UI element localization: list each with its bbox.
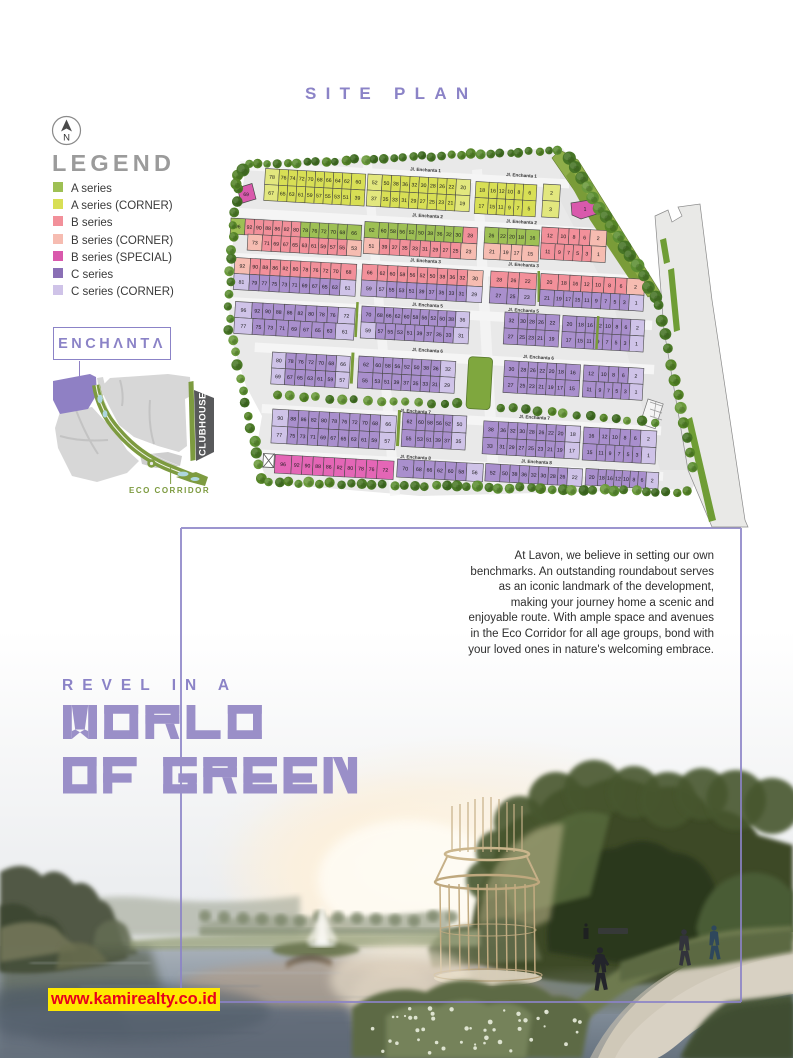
svg-text:29: 29 xyxy=(410,198,416,204)
svg-text:73: 73 xyxy=(267,325,273,331)
svg-text:27: 27 xyxy=(442,248,448,254)
svg-text:51: 51 xyxy=(384,379,390,385)
svg-text:25: 25 xyxy=(510,294,516,300)
svg-text:2: 2 xyxy=(634,285,637,291)
svg-text:61: 61 xyxy=(342,329,348,335)
svg-text:19: 19 xyxy=(548,336,554,342)
svg-text:8: 8 xyxy=(623,435,626,441)
svg-text:55: 55 xyxy=(387,329,393,335)
svg-text:55: 55 xyxy=(339,245,345,251)
svg-text:37: 37 xyxy=(403,380,409,386)
svg-text:21: 21 xyxy=(537,336,543,342)
svg-text:10: 10 xyxy=(507,189,513,195)
svg-text:36: 36 xyxy=(437,231,443,237)
svg-text:76: 76 xyxy=(298,359,304,365)
svg-text:23: 23 xyxy=(438,200,444,206)
svg-text:75: 75 xyxy=(271,281,277,287)
svg-text:19: 19 xyxy=(557,448,563,454)
svg-text:22: 22 xyxy=(548,431,554,437)
svg-text:72: 72 xyxy=(382,468,388,474)
svg-text:86: 86 xyxy=(286,310,292,316)
svg-text:5: 5 xyxy=(613,299,616,305)
svg-text:28: 28 xyxy=(430,183,436,189)
svg-text:17: 17 xyxy=(569,448,575,454)
svg-text:69: 69 xyxy=(275,374,281,380)
svg-text:26: 26 xyxy=(559,474,565,480)
svg-text:3: 3 xyxy=(585,251,588,257)
svg-text:67: 67 xyxy=(283,242,289,248)
svg-text:15: 15 xyxy=(574,297,580,303)
svg-text:57: 57 xyxy=(316,193,322,199)
svg-text:17: 17 xyxy=(566,338,572,344)
svg-text:8: 8 xyxy=(572,235,575,241)
svg-text:53: 53 xyxy=(417,437,423,443)
svg-text:36: 36 xyxy=(402,182,408,188)
svg-text:69: 69 xyxy=(291,327,297,333)
svg-text:53: 53 xyxy=(334,194,340,200)
svg-text:3: 3 xyxy=(624,389,627,395)
svg-text:17: 17 xyxy=(565,297,571,303)
svg-text:12: 12 xyxy=(547,233,553,239)
svg-text:68: 68 xyxy=(372,421,378,427)
svg-text:35: 35 xyxy=(413,381,419,387)
svg-text:12: 12 xyxy=(615,476,621,482)
svg-text:60: 60 xyxy=(418,420,424,426)
svg-text:67: 67 xyxy=(303,327,309,333)
svg-text:35: 35 xyxy=(402,246,408,252)
svg-text:38: 38 xyxy=(393,181,399,187)
svg-text:16: 16 xyxy=(588,433,594,439)
svg-text:12: 12 xyxy=(584,282,590,288)
svg-text:56: 56 xyxy=(394,364,400,370)
svg-text:8: 8 xyxy=(517,190,520,196)
svg-text:20: 20 xyxy=(589,475,595,481)
svg-text:70: 70 xyxy=(362,420,368,426)
svg-text:72: 72 xyxy=(321,229,327,235)
svg-text:62: 62 xyxy=(363,362,369,368)
svg-text:36: 36 xyxy=(500,428,506,434)
svg-text:22: 22 xyxy=(525,279,531,285)
svg-text:70: 70 xyxy=(402,466,408,472)
svg-text:31: 31 xyxy=(499,444,505,450)
svg-text:70: 70 xyxy=(365,312,371,318)
svg-text:53: 53 xyxy=(397,330,403,336)
svg-text:37: 37 xyxy=(428,290,434,296)
svg-text:72: 72 xyxy=(343,313,349,319)
svg-text:10: 10 xyxy=(605,324,611,330)
svg-text:22: 22 xyxy=(448,184,454,190)
svg-text:19: 19 xyxy=(556,296,562,302)
svg-text:15: 15 xyxy=(527,251,533,257)
svg-text:21: 21 xyxy=(547,447,553,453)
svg-text:2: 2 xyxy=(550,191,553,197)
svg-text:32: 32 xyxy=(510,428,516,434)
svg-text:76: 76 xyxy=(330,313,336,319)
svg-text:35: 35 xyxy=(436,332,442,338)
svg-text:10: 10 xyxy=(560,234,566,240)
svg-text:23: 23 xyxy=(529,384,535,390)
svg-text:20: 20 xyxy=(558,431,564,437)
svg-text:80: 80 xyxy=(321,418,327,424)
svg-text:28: 28 xyxy=(520,367,526,373)
svg-text:82: 82 xyxy=(311,418,317,424)
svg-text:96: 96 xyxy=(280,462,286,468)
svg-text:62: 62 xyxy=(394,314,400,320)
svg-text:82: 82 xyxy=(282,266,288,272)
svg-text:26: 26 xyxy=(510,278,516,284)
svg-text:11: 11 xyxy=(586,339,592,345)
svg-text:6: 6 xyxy=(583,235,586,241)
svg-text:88: 88 xyxy=(315,464,321,470)
svg-text:76: 76 xyxy=(313,268,319,274)
svg-text:20: 20 xyxy=(548,369,554,375)
svg-text:71: 71 xyxy=(264,241,270,247)
svg-text:62: 62 xyxy=(406,419,412,425)
svg-text:17: 17 xyxy=(557,385,563,391)
svg-text:78: 78 xyxy=(269,175,275,181)
svg-text:72: 72 xyxy=(299,176,305,182)
svg-text:20: 20 xyxy=(460,185,466,191)
svg-text:68: 68 xyxy=(377,313,383,319)
svg-text:60: 60 xyxy=(355,179,361,185)
svg-text:27: 27 xyxy=(518,445,524,451)
svg-text:62: 62 xyxy=(437,468,443,474)
svg-text:77: 77 xyxy=(261,281,267,287)
svg-text:60: 60 xyxy=(403,314,409,320)
svg-text:82: 82 xyxy=(336,465,342,471)
svg-text:90: 90 xyxy=(304,463,310,469)
svg-text:32: 32 xyxy=(508,318,514,324)
svg-text:55: 55 xyxy=(389,287,395,293)
svg-text:9: 9 xyxy=(608,451,611,457)
svg-text:69: 69 xyxy=(302,283,308,289)
svg-text:92: 92 xyxy=(294,463,300,469)
svg-text:33: 33 xyxy=(392,197,398,203)
svg-text:60: 60 xyxy=(448,469,454,475)
svg-text:68: 68 xyxy=(416,467,422,473)
svg-text:6: 6 xyxy=(640,478,643,484)
svg-text:6: 6 xyxy=(634,436,637,442)
svg-text:5: 5 xyxy=(527,206,530,212)
svg-text:71: 71 xyxy=(291,283,297,289)
svg-text:73: 73 xyxy=(300,434,306,440)
svg-text:31: 31 xyxy=(432,382,438,388)
svg-text:69: 69 xyxy=(243,192,249,198)
svg-text:80: 80 xyxy=(308,311,314,317)
svg-text:5: 5 xyxy=(626,452,629,458)
svg-text:65: 65 xyxy=(292,242,298,248)
svg-text:15: 15 xyxy=(577,338,583,344)
svg-text:19: 19 xyxy=(459,201,465,207)
svg-text:27: 27 xyxy=(495,293,501,299)
svg-text:7: 7 xyxy=(607,388,610,394)
svg-text:32: 32 xyxy=(411,182,417,188)
svg-text:76: 76 xyxy=(311,228,317,234)
svg-text:88: 88 xyxy=(265,226,271,232)
svg-text:86: 86 xyxy=(274,226,280,232)
svg-text:38: 38 xyxy=(511,472,517,478)
svg-text:10: 10 xyxy=(601,372,607,378)
svg-text:36: 36 xyxy=(459,317,465,323)
svg-text:74: 74 xyxy=(290,176,296,182)
svg-text:26: 26 xyxy=(538,320,544,326)
svg-text:11: 11 xyxy=(545,249,551,255)
svg-text:33: 33 xyxy=(446,333,452,339)
svg-text:58: 58 xyxy=(399,272,405,278)
svg-text:92: 92 xyxy=(239,264,245,270)
svg-text:30: 30 xyxy=(420,183,426,189)
svg-text:68: 68 xyxy=(339,230,345,236)
svg-text:77: 77 xyxy=(240,324,246,330)
svg-text:68: 68 xyxy=(317,177,323,183)
svg-text:37: 37 xyxy=(426,332,432,338)
svg-text:39: 39 xyxy=(435,438,441,444)
svg-text:27: 27 xyxy=(508,334,514,340)
svg-text:63: 63 xyxy=(327,329,333,335)
svg-text:CLUBHOUSE: CLUBHOUSE xyxy=(198,392,209,456)
svg-text:18: 18 xyxy=(558,369,564,375)
svg-text:81: 81 xyxy=(238,280,244,286)
svg-text:28: 28 xyxy=(467,233,473,239)
svg-text:88: 88 xyxy=(290,416,296,422)
svg-text:50: 50 xyxy=(413,365,419,371)
svg-text:56: 56 xyxy=(399,229,405,235)
svg-text:30: 30 xyxy=(472,276,478,282)
svg-text:N: N xyxy=(63,133,70,144)
svg-text:50: 50 xyxy=(429,274,435,280)
svg-text:15: 15 xyxy=(569,386,575,392)
svg-text:1: 1 xyxy=(634,390,637,396)
svg-text:22: 22 xyxy=(539,368,545,374)
svg-text:11: 11 xyxy=(598,450,604,456)
svg-text:3: 3 xyxy=(623,341,626,347)
svg-text:35: 35 xyxy=(383,197,389,203)
svg-text:52: 52 xyxy=(430,316,436,322)
svg-text:38: 38 xyxy=(423,366,429,372)
svg-text:39: 39 xyxy=(354,195,360,201)
svg-text:25: 25 xyxy=(519,383,525,389)
svg-text:66: 66 xyxy=(351,231,357,237)
svg-text:51: 51 xyxy=(343,195,349,201)
svg-text:60: 60 xyxy=(389,271,395,277)
svg-text:59: 59 xyxy=(365,328,371,334)
svg-text:8: 8 xyxy=(612,372,615,378)
svg-text:52: 52 xyxy=(445,421,451,427)
svg-text:67: 67 xyxy=(330,436,336,442)
svg-text:9: 9 xyxy=(595,298,598,304)
svg-text:23: 23 xyxy=(528,335,534,341)
svg-text:5: 5 xyxy=(576,251,579,257)
svg-text:55: 55 xyxy=(325,194,331,200)
svg-text:76: 76 xyxy=(369,467,375,473)
svg-text:30: 30 xyxy=(519,429,525,435)
svg-text:30: 30 xyxy=(540,473,546,479)
svg-text:50: 50 xyxy=(456,422,462,428)
svg-text:20: 20 xyxy=(509,234,515,240)
svg-text:92: 92 xyxy=(246,225,252,231)
svg-text:63: 63 xyxy=(301,243,307,249)
svg-text:20: 20 xyxy=(546,280,552,286)
svg-text:50: 50 xyxy=(383,181,389,187)
svg-text:67: 67 xyxy=(312,284,318,290)
svg-text:18: 18 xyxy=(599,475,605,481)
svg-text:22: 22 xyxy=(500,234,506,240)
svg-text:33: 33 xyxy=(448,291,454,297)
svg-text:52: 52 xyxy=(404,364,410,370)
svg-text:78: 78 xyxy=(358,466,364,472)
svg-text:18: 18 xyxy=(479,188,485,194)
svg-text:70: 70 xyxy=(333,269,339,275)
svg-text:72: 72 xyxy=(308,360,314,366)
svg-text:38: 38 xyxy=(448,317,454,323)
svg-text:78: 78 xyxy=(319,312,325,318)
svg-text:33: 33 xyxy=(412,246,418,252)
svg-text:15: 15 xyxy=(587,450,593,456)
svg-text:78: 78 xyxy=(331,419,337,425)
svg-text:18: 18 xyxy=(561,281,567,287)
svg-text:59: 59 xyxy=(320,244,326,250)
svg-text:8: 8 xyxy=(632,477,635,483)
svg-text:9: 9 xyxy=(508,205,511,211)
svg-text:2: 2 xyxy=(597,236,600,242)
svg-text:37: 37 xyxy=(392,245,398,251)
svg-text:37: 37 xyxy=(444,438,450,444)
svg-text:68: 68 xyxy=(345,270,351,276)
svg-text:66: 66 xyxy=(367,270,373,276)
svg-text:10: 10 xyxy=(595,282,601,288)
svg-text:27: 27 xyxy=(420,199,426,205)
svg-text:1: 1 xyxy=(635,341,638,347)
svg-text:30: 30 xyxy=(455,232,461,238)
svg-text:30: 30 xyxy=(508,367,514,373)
svg-text:86: 86 xyxy=(326,464,332,470)
svg-text:29: 29 xyxy=(432,247,438,253)
svg-text:29: 29 xyxy=(444,383,450,389)
svg-text:86: 86 xyxy=(300,417,306,423)
svg-text:22: 22 xyxy=(549,320,555,326)
svg-text:7: 7 xyxy=(617,452,620,458)
svg-text:26: 26 xyxy=(530,368,536,374)
svg-text:65: 65 xyxy=(322,284,328,290)
svg-text:51: 51 xyxy=(368,244,374,250)
svg-text:80: 80 xyxy=(347,466,353,472)
svg-text:66: 66 xyxy=(340,362,346,368)
svg-text:59: 59 xyxy=(327,377,333,383)
svg-text:33: 33 xyxy=(422,381,428,387)
svg-text:68: 68 xyxy=(328,361,334,367)
svg-text:63: 63 xyxy=(332,285,338,291)
svg-text:86: 86 xyxy=(272,266,278,272)
svg-text:37: 37 xyxy=(371,196,377,202)
svg-text:7: 7 xyxy=(567,250,570,256)
svg-text:36: 36 xyxy=(449,275,455,281)
svg-text:3: 3 xyxy=(623,300,626,306)
svg-text:7: 7 xyxy=(605,340,608,346)
svg-text:66: 66 xyxy=(426,468,432,474)
svg-text:11: 11 xyxy=(498,205,504,211)
svg-text:36: 36 xyxy=(433,366,439,372)
svg-text:25: 25 xyxy=(519,335,525,341)
svg-text:71: 71 xyxy=(279,326,285,332)
svg-text:82: 82 xyxy=(297,311,303,317)
svg-text:25: 25 xyxy=(429,199,435,205)
svg-text:79: 79 xyxy=(251,280,257,286)
svg-text:8: 8 xyxy=(608,283,611,289)
svg-text:90: 90 xyxy=(256,225,262,231)
svg-text:21: 21 xyxy=(447,200,453,206)
svg-text:35: 35 xyxy=(438,290,444,296)
svg-text:7: 7 xyxy=(604,299,607,305)
svg-text:58: 58 xyxy=(385,363,391,369)
svg-text:53: 53 xyxy=(374,379,380,385)
svg-text:62: 62 xyxy=(344,179,350,185)
svg-text:39: 39 xyxy=(393,380,399,386)
svg-text:15: 15 xyxy=(489,204,495,210)
svg-text:65: 65 xyxy=(280,191,286,197)
svg-text:70: 70 xyxy=(308,177,314,183)
svg-text:6: 6 xyxy=(624,325,627,331)
svg-text:21: 21 xyxy=(544,296,550,302)
svg-text:52: 52 xyxy=(372,180,378,186)
svg-text:72: 72 xyxy=(323,268,329,274)
svg-text:3: 3 xyxy=(635,453,638,459)
svg-text:21: 21 xyxy=(489,249,495,255)
svg-text:77: 77 xyxy=(276,433,282,439)
svg-text:67: 67 xyxy=(268,191,274,197)
svg-text:16: 16 xyxy=(607,476,613,482)
svg-text:50: 50 xyxy=(439,316,445,322)
svg-text:39: 39 xyxy=(381,244,387,250)
svg-text:11: 11 xyxy=(584,298,590,304)
svg-text:38: 38 xyxy=(439,274,445,280)
svg-text:32: 32 xyxy=(459,275,465,281)
svg-text:58: 58 xyxy=(390,229,396,235)
svg-text:31: 31 xyxy=(458,333,464,339)
svg-text:12: 12 xyxy=(588,371,594,377)
svg-text:8: 8 xyxy=(615,324,618,330)
svg-text:82: 82 xyxy=(284,227,290,233)
svg-text:31: 31 xyxy=(401,198,407,204)
svg-text:28: 28 xyxy=(529,429,535,435)
svg-text:73: 73 xyxy=(281,282,287,288)
svg-text:1: 1 xyxy=(597,252,600,258)
svg-text:61: 61 xyxy=(345,286,351,292)
svg-text:12: 12 xyxy=(602,434,608,440)
svg-text:3: 3 xyxy=(549,207,552,213)
svg-text:2: 2 xyxy=(651,478,654,484)
svg-text:59: 59 xyxy=(371,438,377,444)
svg-text:25: 25 xyxy=(453,248,459,254)
svg-text:63: 63 xyxy=(289,192,295,198)
svg-text:64: 64 xyxy=(335,178,341,184)
svg-text:60: 60 xyxy=(381,228,387,234)
svg-text:58: 58 xyxy=(412,315,418,321)
svg-text:73: 73 xyxy=(252,240,258,246)
svg-text:28: 28 xyxy=(496,277,502,283)
svg-text:35: 35 xyxy=(455,439,461,445)
svg-text:1: 1 xyxy=(647,453,650,459)
svg-text:28: 28 xyxy=(550,474,556,480)
svg-text:6: 6 xyxy=(619,284,622,290)
svg-text:29: 29 xyxy=(509,445,515,451)
svg-text:78: 78 xyxy=(302,228,308,234)
svg-text:66: 66 xyxy=(326,178,332,184)
svg-text:55: 55 xyxy=(362,378,368,384)
svg-text:19: 19 xyxy=(548,385,554,391)
svg-text:61: 61 xyxy=(317,376,323,382)
svg-text:76: 76 xyxy=(281,175,287,181)
svg-text:36: 36 xyxy=(521,472,527,478)
